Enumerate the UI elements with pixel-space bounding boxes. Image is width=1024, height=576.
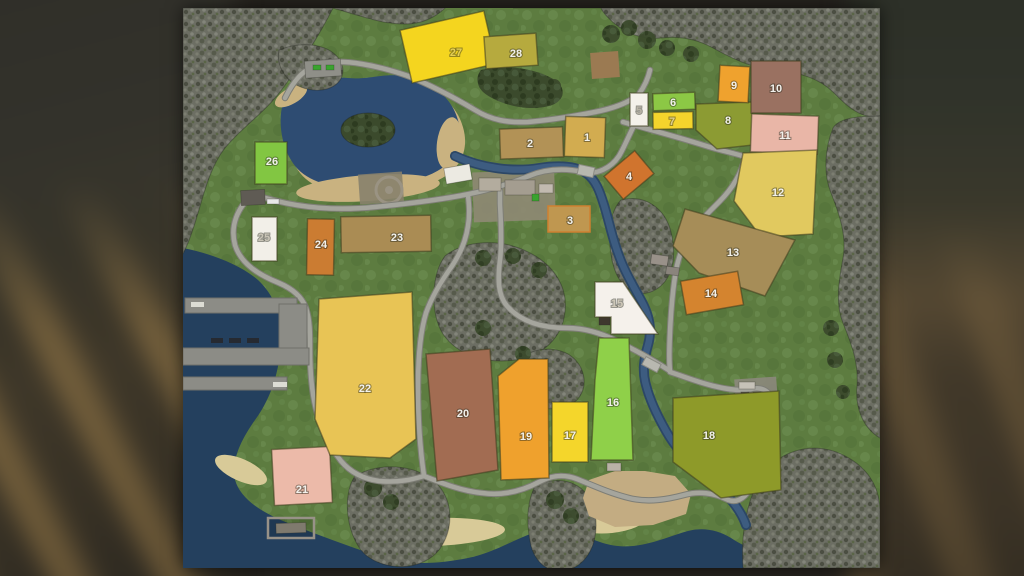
tree-clump bbox=[512, 79, 530, 97]
field-24[interactable]: 24 bbox=[307, 219, 335, 275]
building bbox=[607, 463, 621, 471]
field-number: 12 bbox=[772, 187, 784, 199]
field-25[interactable]: 25 bbox=[252, 217, 277, 261]
field-number: 4 bbox=[626, 171, 633, 183]
building bbox=[326, 65, 334, 70]
field-number: 24 bbox=[315, 239, 328, 251]
tree-clump bbox=[683, 46, 699, 62]
field-number: 15 bbox=[611, 298, 623, 310]
tree-clump bbox=[621, 20, 637, 36]
tree-clump bbox=[823, 320, 839, 336]
field-number: 9 bbox=[731, 80, 737, 92]
field-number: 3 bbox=[567, 215, 573, 227]
building bbox=[313, 65, 321, 70]
building bbox=[650, 254, 668, 266]
field-10[interactable]: 10 bbox=[751, 61, 801, 113]
field-number: 23 bbox=[391, 232, 403, 244]
tree-clump bbox=[563, 508, 579, 524]
boat bbox=[191, 302, 204, 307]
field-number: 17 bbox=[564, 430, 576, 442]
building bbox=[666, 266, 680, 276]
building bbox=[505, 180, 535, 195]
field-number: 13 bbox=[727, 247, 739, 259]
field-20[interactable]: 20 bbox=[426, 349, 498, 481]
boat bbox=[273, 382, 287, 387]
field-19[interactable]: 19 bbox=[498, 359, 549, 480]
field-number: 16 bbox=[607, 397, 619, 409]
tree-clump bbox=[475, 250, 491, 266]
boat bbox=[211, 338, 223, 343]
tree-clump bbox=[531, 262, 547, 278]
dirt-patch bbox=[590, 51, 620, 79]
map-canvas: 1234567891011121314151617181920212223242… bbox=[183, 8, 880, 568]
field-number: 21 bbox=[296, 484, 308, 496]
field-number: 27 bbox=[450, 47, 462, 59]
field-number: 22 bbox=[359, 383, 371, 395]
field-number: 20 bbox=[457, 408, 469, 420]
field-number: 18 bbox=[703, 430, 715, 442]
farmyard-pad bbox=[472, 170, 556, 223]
tree-clump bbox=[836, 385, 850, 399]
field-1[interactable]: 1 bbox=[564, 116, 605, 157]
field-28[interactable]: 28 bbox=[484, 33, 538, 69]
tree-clump bbox=[827, 352, 843, 368]
tree-clump bbox=[475, 320, 491, 336]
field-7[interactable]: 7 bbox=[653, 112, 693, 130]
field-number: 10 bbox=[770, 83, 782, 95]
field-number: 2 bbox=[527, 138, 533, 150]
building bbox=[304, 59, 341, 78]
field-6[interactable]: 6 bbox=[653, 92, 696, 110]
tree-clump bbox=[546, 491, 564, 509]
field-22[interactable]: 22 bbox=[315, 292, 416, 458]
building bbox=[241, 189, 266, 205]
tree-clump bbox=[505, 248, 521, 264]
screenshot-stage: 1234567891011121314151617181920212223242… bbox=[0, 0, 1024, 576]
building bbox=[479, 178, 501, 191]
field-17[interactable]: 17 bbox=[552, 402, 588, 462]
building bbox=[532, 194, 539, 201]
field-5[interactable]: 5 bbox=[630, 93, 648, 126]
field-number: 19 bbox=[520, 431, 532, 443]
field-number: 25 bbox=[258, 232, 270, 244]
boat bbox=[247, 338, 259, 343]
field-number: 5 bbox=[636, 105, 642, 117]
building bbox=[267, 199, 279, 204]
tree-clump bbox=[602, 25, 620, 43]
building bbox=[539, 184, 553, 193]
tree-clump bbox=[479, 73, 497, 91]
field-16[interactable]: 16 bbox=[591, 338, 633, 460]
tree-clump bbox=[495, 86, 511, 102]
field-number: 7 bbox=[669, 116, 675, 128]
field-9[interactable]: 9 bbox=[718, 65, 750, 103]
harbor-pier bbox=[183, 377, 287, 390]
field-number: 14 bbox=[705, 288, 718, 300]
game-field-map: 1234567891011121314151617181920212223242… bbox=[183, 8, 880, 568]
field-23[interactable]: 23 bbox=[341, 215, 432, 253]
field-number: 1 bbox=[584, 132, 590, 144]
field-26[interactable]: 26 bbox=[255, 142, 287, 184]
field-number: 28 bbox=[510, 48, 522, 60]
field-number: 8 bbox=[725, 115, 731, 127]
boat bbox=[229, 338, 241, 343]
tree-clump bbox=[383, 494, 399, 510]
tree-clump bbox=[372, 127, 386, 141]
tree-clump bbox=[547, 79, 561, 93]
field-21[interactable]: 21 bbox=[272, 447, 333, 506]
field-number: 26 bbox=[266, 156, 278, 168]
field-2[interactable]: 2 bbox=[499, 127, 563, 159]
field-11[interactable]: 11 bbox=[750, 114, 818, 154]
field-number: 6 bbox=[670, 97, 676, 109]
field-3[interactable]: 3 bbox=[548, 206, 590, 232]
tree-clump bbox=[531, 88, 547, 104]
harbor-pier bbox=[183, 348, 309, 365]
building bbox=[276, 522, 306, 533]
field-number: 11 bbox=[779, 130, 791, 142]
tree-clump bbox=[659, 40, 675, 56]
building bbox=[739, 382, 755, 389]
tree-clump bbox=[638, 31, 656, 49]
